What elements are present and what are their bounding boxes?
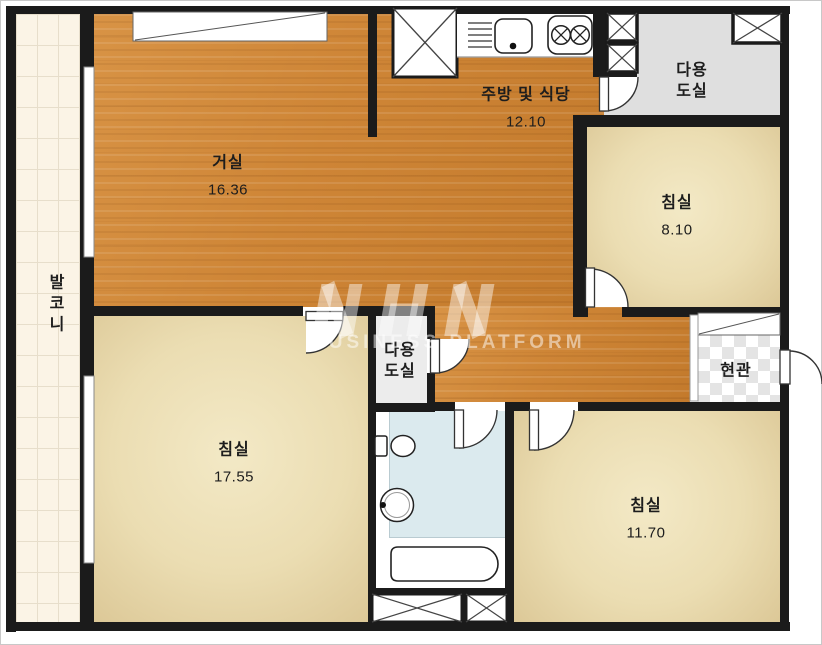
wall-bedroom-right-left	[573, 115, 587, 317]
wall-outer-left	[6, 6, 16, 632]
bedroom-bottom-name: 침실	[627, 497, 666, 518]
wall-outer-top	[6, 6, 790, 14]
wall-bath-bedroom	[505, 402, 514, 596]
label-kitchen: 주방 및 식당 12.10	[481, 86, 571, 131]
hallway-wood-floor	[435, 306, 690, 402]
wall-hall-bottom-a	[435, 402, 455, 411]
kitchen-name: 주방 및 식당	[481, 86, 571, 107]
balcony-name: 발코니	[42, 274, 66, 337]
label-living-room: 거실 16.36	[208, 154, 248, 199]
floor-plan: BUSINESS PLATFORM 거실 16.36 주방 및 식당 12.10…	[0, 0, 822, 645]
bedroom-right-area: 8.10	[661, 221, 692, 238]
wall-outer-right-lower	[780, 384, 789, 631]
wall-living-kitchen	[368, 6, 377, 137]
wall-utility-bottom	[573, 115, 780, 127]
entrance-name: 현관	[720, 362, 751, 383]
label-bedroom-left: 침실 17.55	[214, 441, 254, 486]
entrance-threshold	[690, 315, 698, 401]
bedroom-left-name: 침실	[214, 441, 254, 462]
wall-outer-right-upper	[780, 6, 789, 350]
wall-utility-stub	[603, 67, 637, 77]
label-entrance: 현관	[720, 362, 751, 383]
door-entrance	[780, 350, 822, 384]
label-balcony: 발코니	[42, 274, 66, 337]
living-room-name: 거실	[208, 154, 248, 175]
living-room-area: 16.36	[208, 181, 248, 198]
kitchen-area: 12.10	[481, 113, 571, 130]
wall-living-bedroom-b	[343, 306, 434, 316]
wall-bedroom-right-bottom-b	[622, 307, 780, 317]
wall-hall-bottom-c	[578, 402, 780, 411]
bedroom-left-area: 17.55	[214, 468, 254, 485]
wall-utilmid-bottom	[368, 403, 435, 412]
wall-living-bedroom-a	[80, 306, 303, 316]
label-bedroom-bottom: 침실 11.70	[627, 497, 666, 542]
utility-top-name: 다용 도실	[676, 61, 707, 103]
wall-bath-bottom-band	[368, 588, 514, 631]
label-utility-top: 다용 도실	[676, 61, 707, 103]
bedroom-bottom-area: 11.70	[627, 524, 666, 541]
label-bedroom-right: 침실 8.10	[661, 194, 692, 239]
bathroom-wet-area	[389, 411, 505, 538]
watermark-text: BUSINESS PLATFORM	[311, 332, 521, 354]
living-kitchen-wood-floor	[94, 14, 604, 307]
wall-bedroom-right-bottom-a	[573, 307, 588, 317]
bedroom-right-name: 침실	[661, 194, 692, 215]
